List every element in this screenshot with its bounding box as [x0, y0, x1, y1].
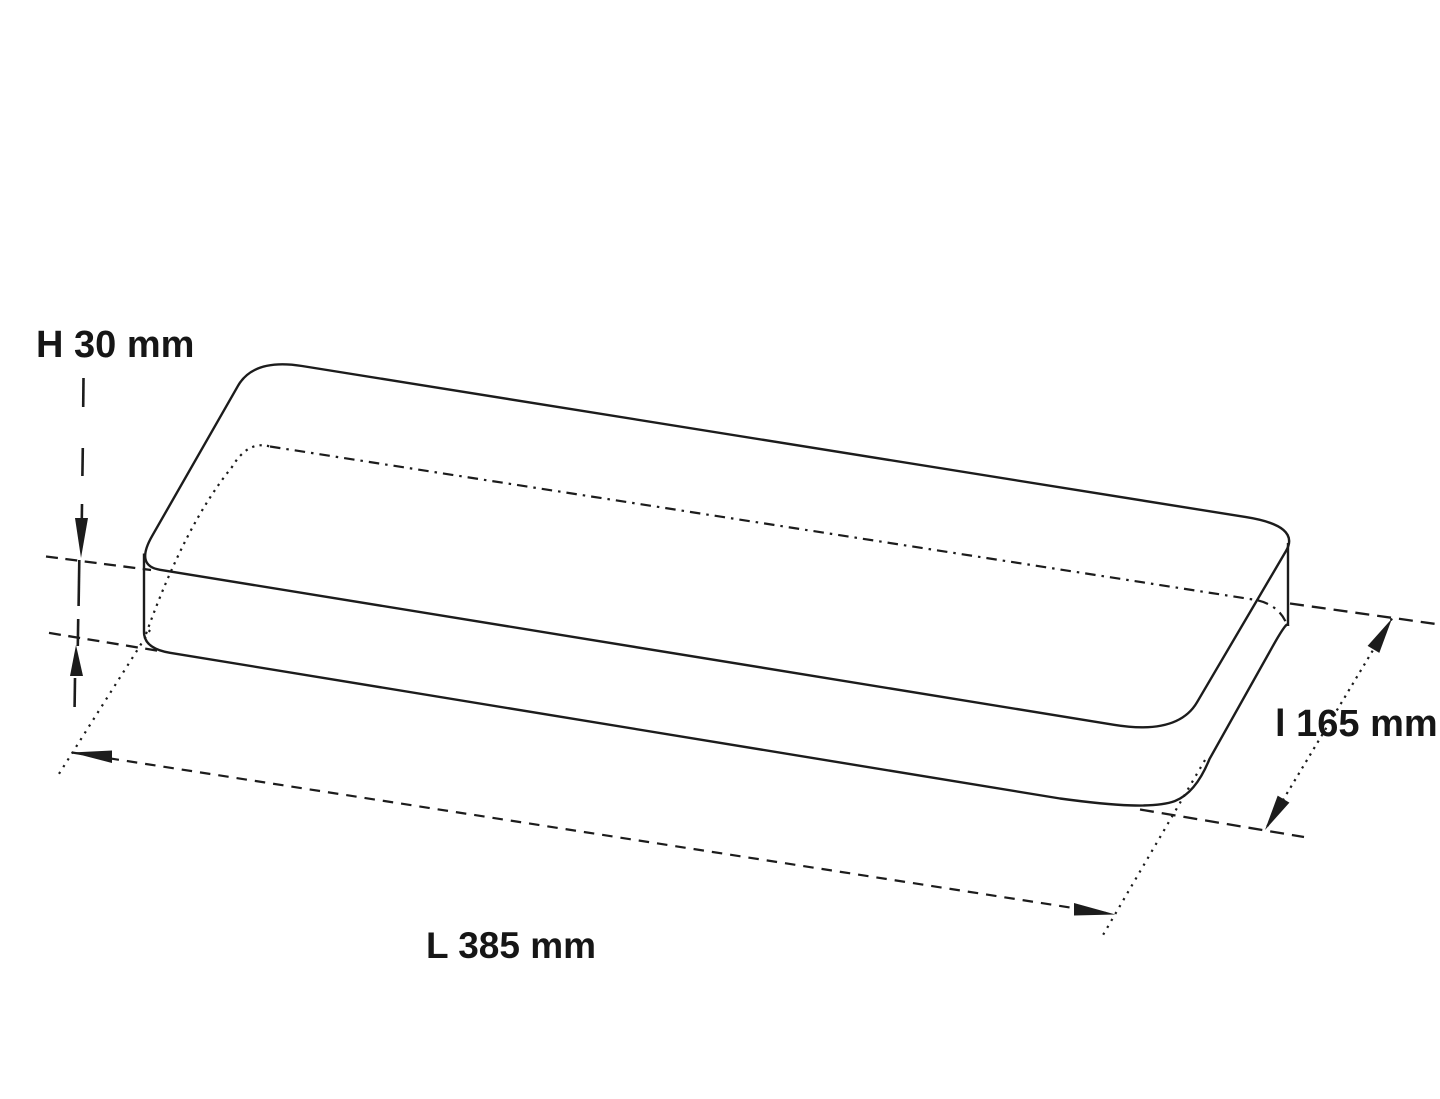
svg-text:H 30 mm: H 30 mm	[36, 324, 194, 366]
svg-text:l 165 mm: l 165 mm	[1275, 703, 1438, 745]
svg-text:L 385 mm: L 385 mm	[426, 925, 596, 966]
